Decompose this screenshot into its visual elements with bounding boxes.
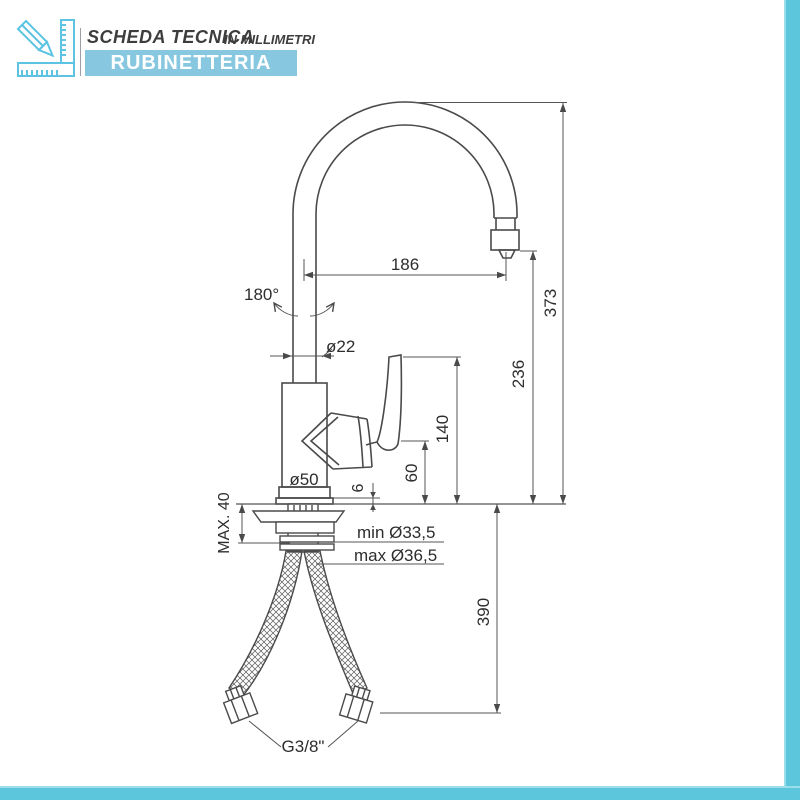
faucet-outline [276, 102, 519, 504]
spout-nozzle [491, 230, 519, 250]
dimension-lines [236, 103, 567, 748]
dim-hole-max-diameter: max Ø36,5 [354, 546, 437, 565]
faucet-technical-drawing: 186 373 236 140 60 390 MAX. 40 6 ø22 180… [0, 0, 800, 800]
technical-sheet-page: SCHEDA TECNICA IN MILLIMETRI RUBINETTERI… [0, 0, 800, 800]
handle-hook [366, 442, 377, 445]
mounting-spacer [276, 522, 334, 533]
flexible-hoses [220, 551, 376, 723]
cartridge-housing [331, 413, 372, 469]
dimension-labels: 186 373 236 140 60 390 MAX. 40 6 ø22 180… [216, 255, 560, 756]
hose-left [229, 551, 302, 697]
swivel-arrow-left [274, 303, 298, 316]
swivel-arrow-right [310, 303, 334, 316]
dim-hose-thread: G3/8" [282, 737, 325, 756]
body-cone-joint [302, 413, 339, 469]
lever-handle [377, 355, 401, 450]
base-plate [276, 498, 333, 504]
spout-end-seam [494, 218, 517, 230]
dim-hole-min-diameter: min Ø33,5 [357, 523, 435, 542]
dim-spout-reach: 186 [391, 255, 419, 274]
dim-overall-height: 373 [541, 289, 560, 317]
dim-spout-tube-diameter: ø22 [326, 337, 355, 356]
aerator-tip [499, 250, 515, 258]
fixing-nut [280, 544, 334, 550]
dim-base-plate-gap: 6 [350, 483, 367, 492]
dim-handle-top-height: 140 [433, 415, 452, 443]
dim-swivel-angle: 180° [244, 285, 279, 304]
dim-outlet-clearance: 236 [509, 360, 528, 388]
dim-base-diameter: ø50 [289, 470, 318, 489]
dim-handle-bottom-height: 60 [402, 464, 421, 483]
arrow-6-top [370, 492, 376, 498]
mounting-plate [253, 511, 344, 522]
arrow-6-bottom [370, 504, 376, 510]
dim-max-deck-thickness: MAX. 40 [216, 492, 233, 553]
horseshoe-washer [280, 536, 334, 542]
hose-fitting-left [220, 684, 258, 724]
mounting-hardware [253, 504, 344, 552]
hose-right [304, 551, 367, 696]
dim-hose-drop-length: 390 [474, 598, 493, 626]
hose-fitting-right [340, 684, 376, 723]
